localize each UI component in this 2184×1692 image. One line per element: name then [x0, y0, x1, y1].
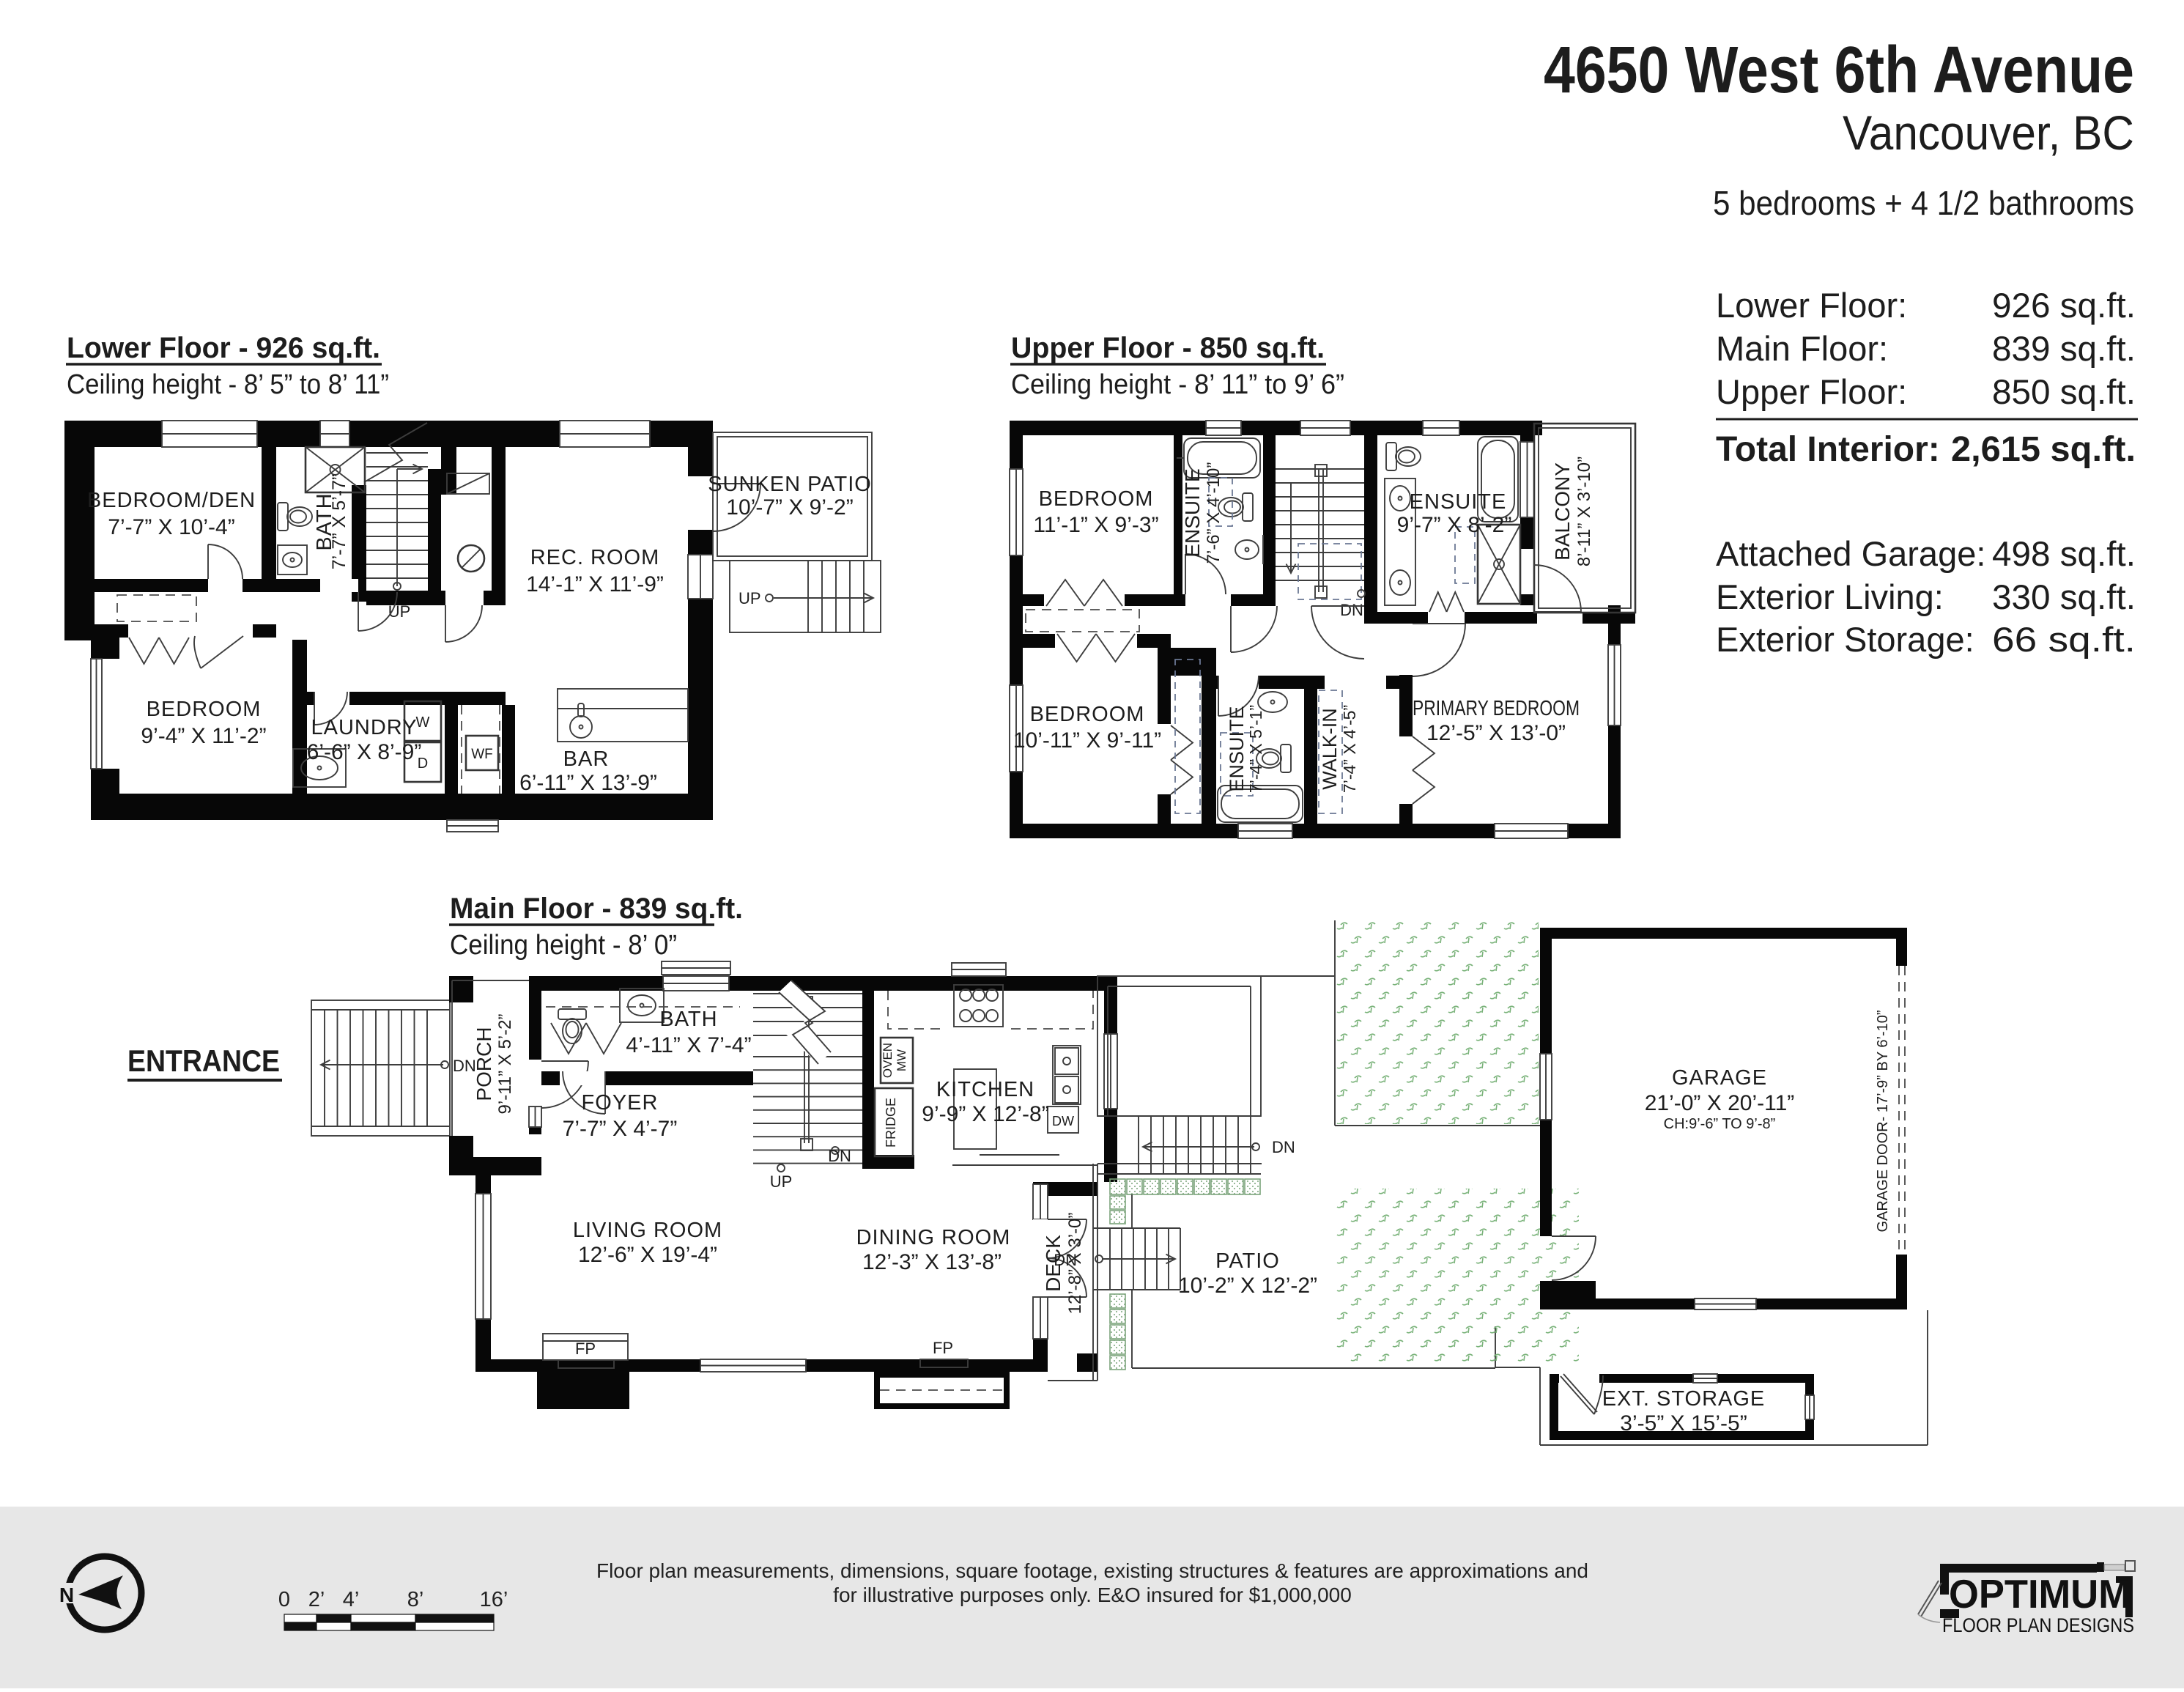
svg-text:7’-7” X 5’-7”: 7’-7” X 5’-7”: [329, 474, 349, 570]
svg-text:Upper Floor - 850 sq.ft.: Upper Floor - 850 sq.ft.: [1011, 332, 1325, 364]
svg-text:Main Floor:: Main Floor:: [1716, 329, 1888, 368]
svg-text:330 sq.ft.: 330 sq.ft.: [1992, 577, 2136, 616]
svg-text:16’: 16’: [480, 1588, 508, 1611]
svg-text:Ceiling height - 8’ 11” to 9’: Ceiling height - 8’ 11” to 9’ 6”: [1011, 369, 1344, 400]
svg-text:LIVING ROOM: LIVING ROOM: [573, 1219, 722, 1242]
svg-text:7’-7” X 4’-7”: 7’-7” X 4’-7”: [563, 1117, 678, 1141]
svg-text:7’-4” X 4’-5”: 7’-4” X 4’-5”: [1340, 705, 1359, 793]
svg-text:PRIMARY BEDROOM: PRIMARY BEDROOM: [1413, 697, 1580, 720]
svg-text:GARAGE: GARAGE: [1672, 1066, 1767, 1090]
svg-text:839 sq.ft.: 839 sq.ft.: [1992, 329, 2136, 368]
svg-text:BALCONY: BALCONY: [1551, 462, 1574, 561]
svg-text:9’-7” X 8’-2”: 9’-7” X 8’-2”: [1397, 513, 1512, 537]
svg-text:BAR: BAR: [563, 747, 610, 771]
svg-text:Total Interior:: Total Interior:: [1716, 430, 1940, 469]
svg-text:9’-9” X 12’-8”: 9’-9” X 12’-8”: [922, 1102, 1048, 1126]
svg-text:DN: DN: [1340, 601, 1363, 619]
svg-text:MW: MW: [895, 1049, 908, 1071]
svg-text:Lower Floor:: Lower Floor:: [1716, 286, 1907, 325]
svg-text:WF: WF: [471, 747, 493, 762]
svg-text:ENSUITE: ENSUITE: [1181, 468, 1204, 557]
svg-text:ENSUITE: ENSUITE: [1226, 706, 1248, 791]
svg-text:Upper Floor:: Upper Floor:: [1716, 372, 1907, 411]
svg-text:8’: 8’: [407, 1588, 424, 1611]
svg-text:Exterior Storage:: Exterior Storage:: [1716, 620, 1974, 659]
svg-text:Ceiling height - 8’ 5” to 8’ 1: Ceiling height - 8’ 5” to 8’ 11”: [67, 369, 389, 400]
svg-text:66 sq.ft.: 66 sq.ft.: [1992, 620, 2136, 659]
svg-text:W: W: [416, 714, 430, 731]
svg-text:12’-3” X 13’-8”: 12’-3” X 13’-8”: [862, 1250, 1002, 1274]
svg-text:14’-1” X 11’-9”: 14’-1” X 11’-9”: [526, 572, 664, 596]
svg-text:3’-5” X 15’-5”: 3’-5” X 15’-5”: [1620, 1411, 1747, 1436]
svg-text:OPTIMUM: OPTIMUM: [1949, 1571, 2131, 1617]
svg-text:12’-5” X 13’-0”: 12’-5” X 13’-0”: [1426, 721, 1566, 745]
svg-text:PATIO: PATIO: [1215, 1249, 1280, 1273]
svg-text:FP: FP: [933, 1339, 953, 1357]
svg-text:21’-0” X 20’-11”: 21’-0” X 20’-11”: [1645, 1091, 1795, 1115]
svg-text:N: N: [59, 1584, 74, 1606]
svg-text:Exterior Living:: Exterior Living:: [1716, 577, 1944, 616]
svg-text:DINING ROOM: DINING ROOM: [856, 1226, 1011, 1249]
svg-text:Floor plan measurements, dimen: Floor plan measurements, dimensions, squ…: [596, 1559, 1588, 1582]
svg-text:0: 0: [278, 1588, 290, 1611]
svg-text:Lower Floor - 926 sq.ft.: Lower Floor - 926 sq.ft.: [67, 332, 380, 364]
svg-text:for illustrative purposes only: for illustrative purposes only. E&O insu…: [833, 1584, 1352, 1606]
svg-text:4’: 4’: [343, 1588, 360, 1611]
svg-text:PORCH: PORCH: [473, 1027, 495, 1101]
svg-text:CH:9’-6” TO 9’-8”: CH:9’-6” TO 9’-8”: [1664, 1116, 1776, 1132]
svg-text:BEDROOM/DEN: BEDROOM/DEN: [87, 489, 256, 512]
svg-text:EXT. STORAGE: EXT. STORAGE: [1602, 1387, 1766, 1411]
svg-text:FP: FP: [575, 1340, 596, 1358]
svg-text:2’: 2’: [308, 1588, 325, 1611]
svg-text:498 sq.ft.: 498 sq.ft.: [1992, 534, 2136, 573]
svg-text:DN: DN: [828, 1147, 851, 1165]
svg-text:7’-6” X 4’-10”: 7’-6” X 4’-10”: [1204, 462, 1224, 564]
svg-text:ENSUITE: ENSUITE: [1410, 490, 1507, 514]
svg-text:11’-1” X 9’-3”: 11’-1” X 9’-3”: [1033, 513, 1158, 537]
svg-text:10’-11” X 9’-11”: 10’-11” X 9’-11”: [1013, 728, 1161, 753]
svg-text:12’-6” X 19’-4”: 12’-6” X 19’-4”: [578, 1243, 717, 1267]
svg-text:4650 West 6th Avenue: 4650 West 6th Avenue: [1544, 34, 2134, 107]
svg-text:GARAGE DOOR- 17’-9” BY 6’-10”: GARAGE DOOR- 17’-9” BY 6’-10”: [1875, 1010, 1891, 1232]
svg-text:KITCHEN: KITCHEN: [936, 1078, 1034, 1101]
svg-text:FLOOR PLAN DESIGNS: FLOOR PLAN DESIGNS: [1942, 1614, 2134, 1636]
svg-text:4’-11” X 7’-4”: 4’-11” X 7’-4”: [626, 1033, 751, 1057]
svg-text:BATH: BATH: [659, 1008, 717, 1031]
svg-text:REC. ROOM: REC. ROOM: [530, 546, 660, 569]
svg-text:UP: UP: [739, 589, 761, 607]
svg-text:7’-7” X 10’-4”: 7’-7” X 10’-4”: [108, 515, 234, 539]
svg-text:FOYER: FOYER: [582, 1091, 659, 1115]
svg-text:10’-2” X 12’-2”: 10’-2” X 12’-2”: [1178, 1274, 1317, 1298]
svg-text:7’-4” X 5’-1”: 7’-4” X 5’-1”: [1246, 705, 1265, 793]
svg-text:926 sq.ft.: 926 sq.ft.: [1992, 286, 2136, 325]
svg-text:Ceiling height - 8’ 0”: Ceiling height - 8’ 0”: [450, 930, 677, 961]
svg-text:BEDROOM: BEDROOM: [1039, 487, 1154, 511]
svg-text:DW: DW: [1052, 1114, 1074, 1128]
svg-text:DN: DN: [1054, 1251, 1077, 1269]
svg-text:BEDROOM: BEDROOM: [1030, 703, 1145, 726]
svg-text:LAUNDRY: LAUNDRY: [311, 716, 417, 739]
svg-text:2,615 sq.ft.: 2,615 sq.ft.: [1951, 430, 2136, 469]
svg-text:WALK-IN: WALK-IN: [1319, 708, 1341, 790]
svg-text:Attached Garage:: Attached Garage:: [1716, 534, 1985, 573]
svg-text:OVEN: OVEN: [881, 1043, 895, 1078]
svg-text:DN: DN: [1272, 1138, 1295, 1156]
svg-text:9’-4” X 11’-2”: 9’-4” X 11’-2”: [141, 724, 266, 748]
svg-text:10’-7” X 9’-2”: 10’-7” X 9’-2”: [726, 495, 853, 520]
svg-text:9’-11” X 5’-2”: 9’-11” X 5’-2”: [495, 1014, 515, 1115]
svg-text:SUNKEN PATIO: SUNKEN PATIO: [708, 473, 872, 496]
svg-text:850 sq.ft.: 850 sq.ft.: [1992, 372, 2136, 411]
svg-text:6’-11” X 13’-9”: 6’-11” X 13’-9”: [519, 771, 657, 795]
svg-text:5 bedrooms + 4 1/2 bathrooms: 5 bedrooms + 4 1/2 bathrooms: [1713, 184, 2134, 222]
svg-text:6’-6” X 8’-9”: 6’-6” X 8’-9”: [307, 740, 422, 764]
svg-text:UP: UP: [770, 1172, 793, 1191]
svg-text:BEDROOM: BEDROOM: [147, 698, 262, 721]
svg-text:Vancouver, BC: Vancouver, BC: [1843, 106, 2134, 160]
svg-text:ENTRANCE: ENTRANCE: [127, 1043, 280, 1078]
svg-text:FRIDGE: FRIDGE: [884, 1098, 898, 1148]
svg-text:Main Floor - 839 sq.ft.: Main Floor - 839 sq.ft.: [450, 893, 743, 925]
svg-text:8’-11” X 3’-10”: 8’-11” X 3’-10”: [1574, 457, 1594, 566]
